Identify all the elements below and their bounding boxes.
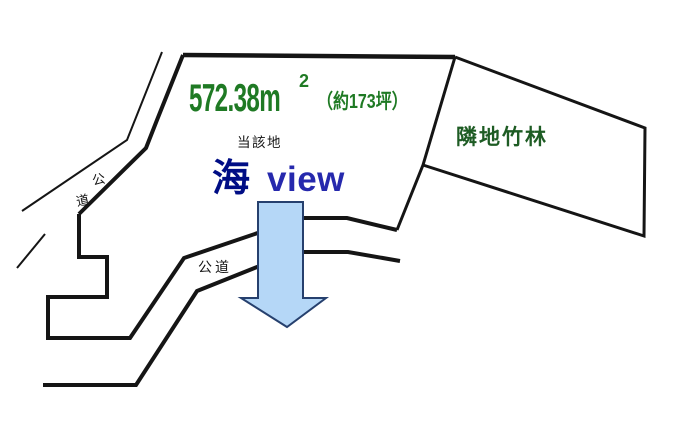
area-unit: m bbox=[259, 77, 280, 120]
area-tsubo-label: （約173坪） bbox=[317, 92, 408, 112]
stepped-parcel-and-road-upper-line bbox=[48, 214, 397, 338]
left-road-outer-line bbox=[22, 52, 162, 211]
left-road-inner-line bbox=[79, 55, 183, 214]
view-text: view bbox=[267, 162, 345, 197]
area-value: 572.38 bbox=[189, 77, 259, 120]
area-superscript: 2 bbox=[299, 72, 309, 90]
left-road-stub-line bbox=[17, 234, 45, 268]
subject-site-label: 当該地 bbox=[237, 136, 282, 150]
public-road-label: 公道 bbox=[198, 260, 232, 274]
plot-top-edge bbox=[183, 55, 455, 57]
plot-right-edge bbox=[397, 57, 455, 230]
neighbor-bamboo-label: 隣地竹林 bbox=[456, 127, 548, 148]
area-value-label: 572.38m bbox=[189, 79, 280, 118]
sea-kanji: 海 bbox=[212, 160, 250, 198]
down-arrow-icon bbox=[241, 202, 326, 327]
plot-line-drawing bbox=[0, 0, 677, 431]
sea-view-label: 海 view bbox=[212, 160, 345, 198]
land-plot-diagram: 572.38m 2 （約173坪） 当該地 海 view 隣地竹林 公道 公 道 bbox=[0, 0, 677, 431]
